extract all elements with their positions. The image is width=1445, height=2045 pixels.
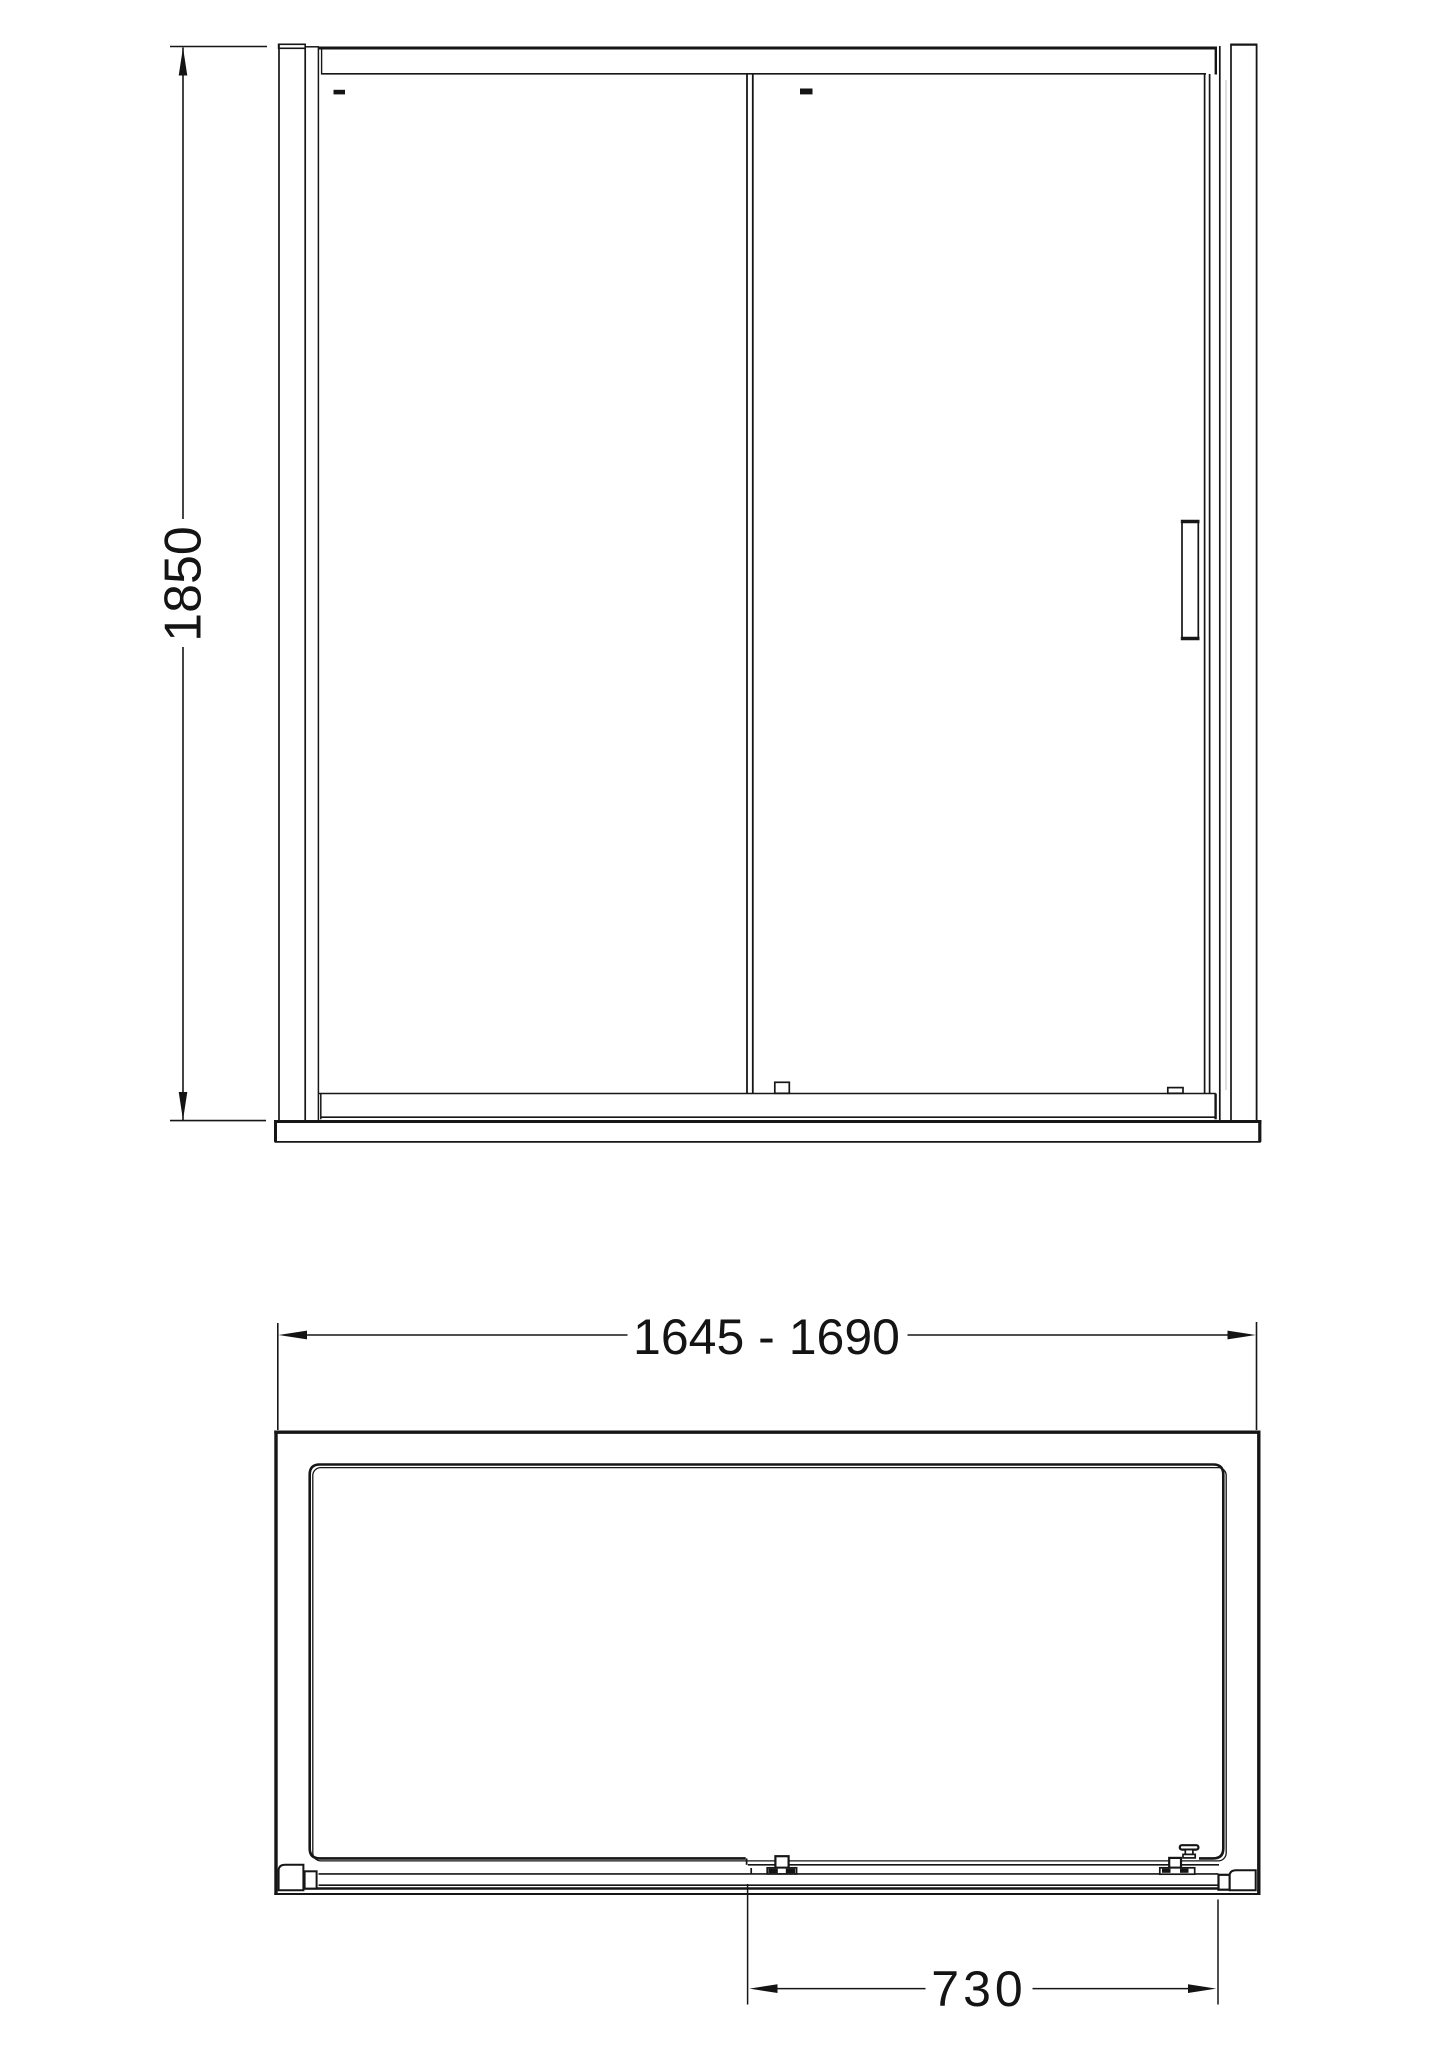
svg-text:1850: 1850: [155, 526, 213, 642]
svg-text:1645 - 1690: 1645 - 1690: [633, 1309, 900, 1365]
svg-text:730: 730: [931, 1961, 1026, 2017]
